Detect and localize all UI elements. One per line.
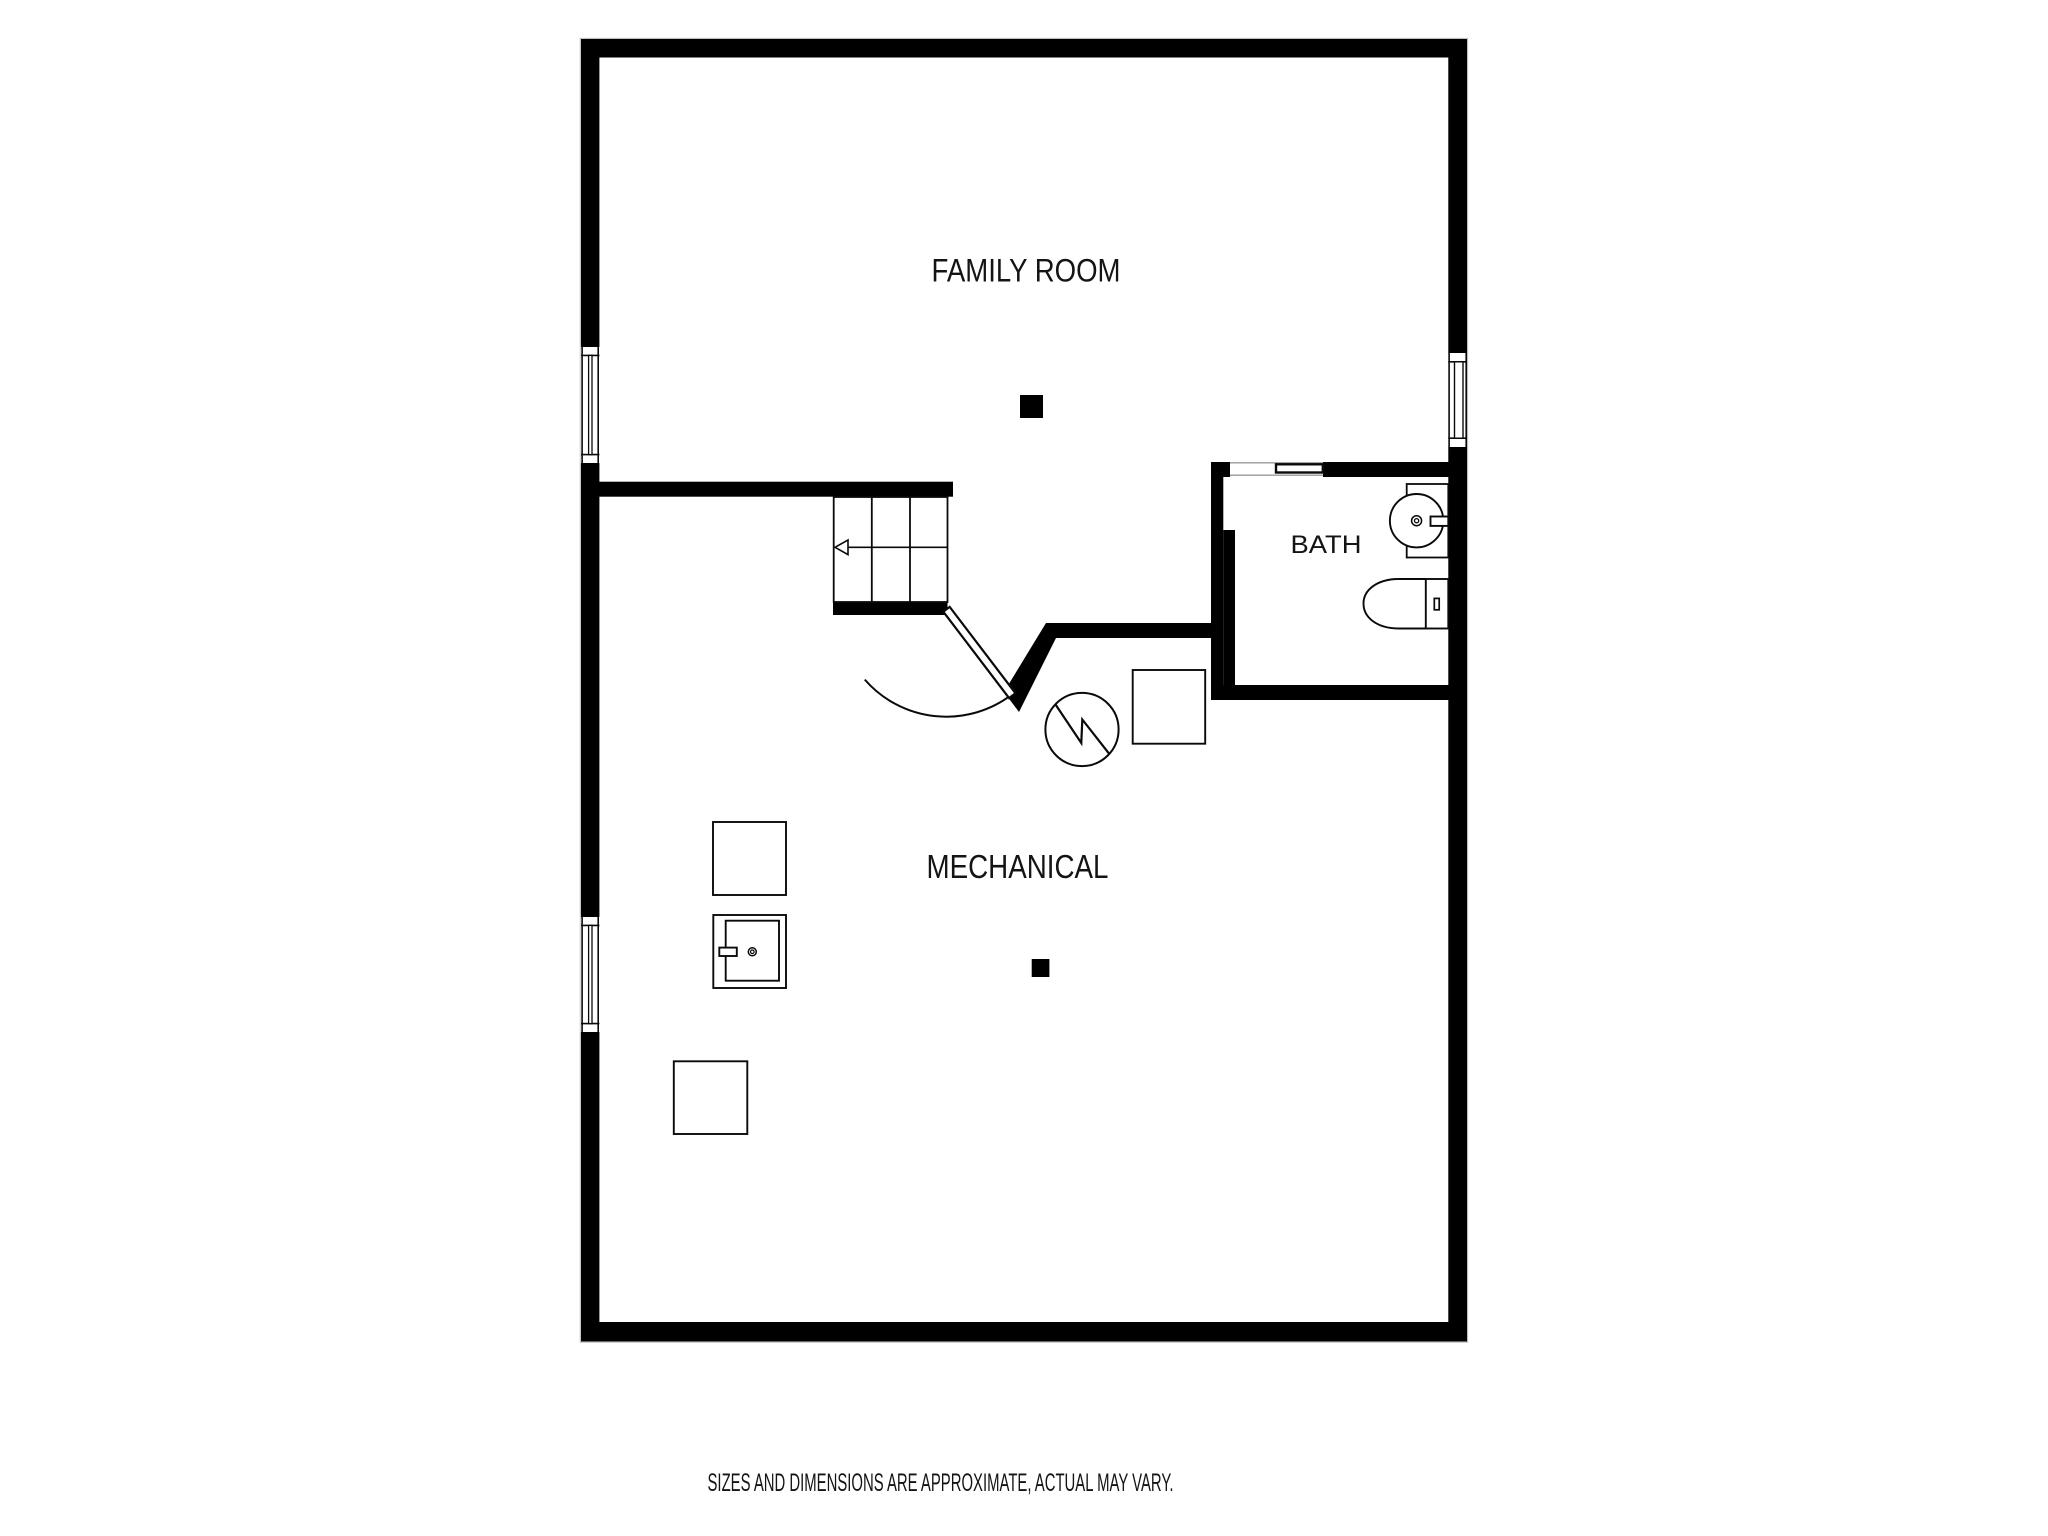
outer-wall-bottom	[581, 1322, 1467, 1342]
outer-wall-right-lower	[1448, 447, 1467, 1342]
door-mechanical	[865, 607, 1016, 717]
sink-icon	[1390, 484, 1448, 558]
mechanical-label: MECHANICAL	[927, 848, 1109, 885]
stairs	[834, 497, 948, 602]
bath-left-wall	[1211, 462, 1223, 700]
family-mechanical-divider-wall	[581, 482, 953, 497]
stairs-bottom-wall	[833, 602, 948, 615]
support-post-mechanical	[1032, 959, 1050, 977]
equipment-square-upper	[713, 822, 786, 895]
toilet-flush-handle	[1434, 598, 1439, 609]
family-room-label: FAMILY ROOM	[932, 253, 1121, 289]
bath-left-wall-furring	[1223, 530, 1235, 700]
toilet-icon	[1364, 579, 1449, 629]
pocket-door-slab	[1276, 464, 1323, 472]
bath-pocket-door	[1230, 463, 1323, 475]
bath-top-wall	[1323, 462, 1467, 477]
stair-direction-arrow-icon	[835, 540, 848, 555]
walls	[581, 39, 1467, 1342]
equipment-square-near-door	[1133, 670, 1206, 744]
bath-bottom-wall	[1211, 685, 1467, 700]
support-post-family-room	[1020, 395, 1043, 418]
floor-plan-drawing: FAMILY ROOM BATH MECHANICAL SIZES AND DI…	[0, 0, 2048, 1536]
mechanical-equipment	[674, 395, 1205, 1134]
water-heater-port-center	[751, 950, 755, 954]
window-glazing-line	[1455, 362, 1464, 438]
sink-faucet	[1431, 517, 1449, 526]
stairs-outline	[834, 497, 948, 602]
water-heater-valve	[719, 948, 737, 956]
disclaimer-text: SIZES AND DIMENSIONS ARE APPROXIMATE, AC…	[708, 1469, 1174, 1497]
outer-wall-left-lower	[581, 1032, 599, 1342]
window-glazing-line	[589, 925, 592, 1023]
toilet-bowl	[1364, 579, 1426, 629]
window-glazing-line	[589, 355, 592, 454]
door-leaf	[943, 607, 1015, 698]
equipment-square-lower	[674, 1061, 748, 1134]
door-swing-arc	[865, 680, 1012, 717]
outer-wall-left-middle	[581, 463, 599, 917]
sink-drain-center	[1415, 519, 1419, 523]
window-left-upper-icon	[581, 347, 600, 463]
outer-wall-left-upper	[581, 39, 599, 347]
water-heater-icon	[713, 915, 786, 988]
outer-wall-right-upper	[1448, 39, 1467, 353]
window-left-lower-icon	[581, 917, 600, 1032]
window-right-icon	[1448, 353, 1467, 447]
floor-plan-page: FAMILY ROOM BATH MECHANICAL SIZES AND DI…	[0, 0, 2048, 1536]
bath-label: BATH	[1291, 531, 1362, 559]
outer-wall-top	[581, 39, 1467, 58]
